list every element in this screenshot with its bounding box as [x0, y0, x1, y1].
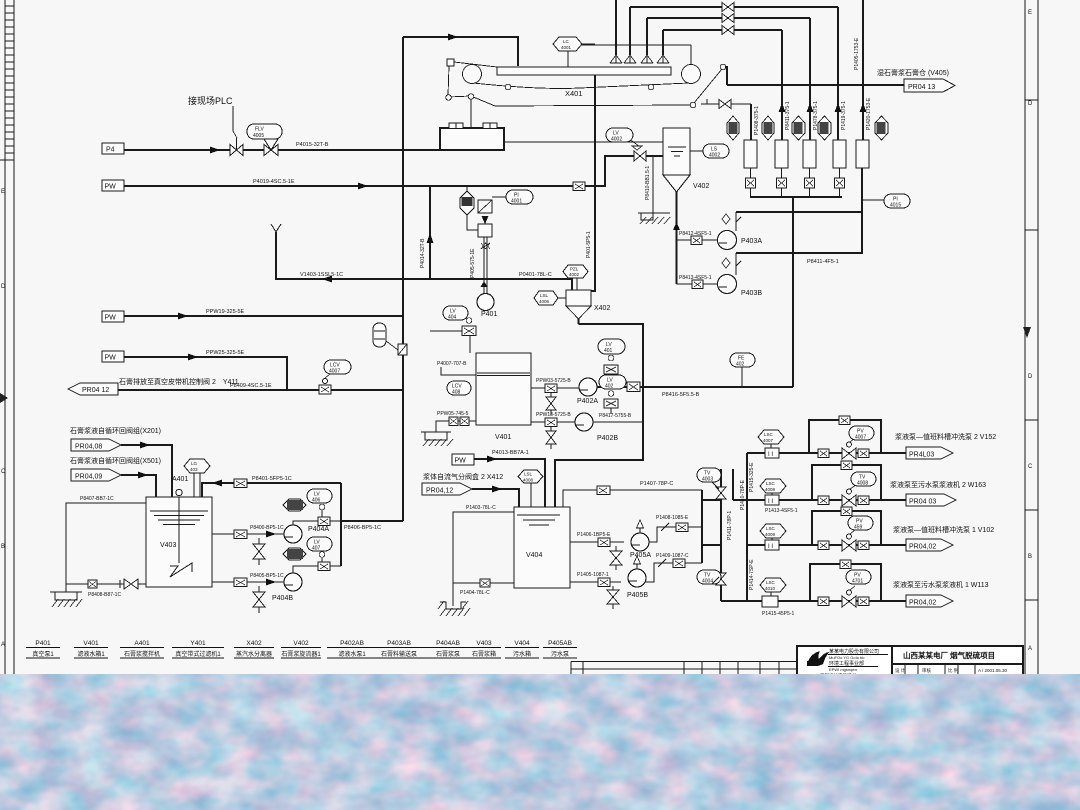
- svg-text:EPWI mgsnqerr: EPWI mgsnqerr: [829, 667, 858, 672]
- svg-text:P8417-5755-B: P8417-5755-B: [599, 413, 632, 419]
- svg-text:P402B: P402B: [597, 435, 618, 442]
- svg-text:PR04 13: PR04 13: [908, 84, 935, 91]
- svg-text:浆液泵至污水泵浆液机 1 W113: 浆液泵至污水泵浆液机 1 W113: [893, 580, 989, 589]
- svg-text:浆液泵—值班料槽冲洗泵 1 V102: 浆液泵—值班料槽冲洗泵 1 V102: [893, 525, 994, 534]
- svg-text:P401: P401: [35, 640, 51, 647]
- svg-text:PW: PW: [105, 315, 117, 322]
- svg-text:石膏浆旋流器1: 石膏浆旋流器1: [281, 650, 321, 658]
- svg-text:P1413-4SF5-1: P1413-4SF5-1: [765, 508, 798, 514]
- svg-text:LSC: LSC: [766, 580, 776, 585]
- svg-text:V403: V403: [476, 640, 492, 647]
- svg-text:山西某某电厂 烟气脱硫项目: 山西某某电厂 烟气脱硫项目: [903, 650, 995, 660]
- svg-text:4008: 4008: [523, 478, 534, 483]
- svg-text:环境工程事业部: 环境工程事业部: [829, 660, 864, 667]
- svg-text:设 计: 设 计: [895, 667, 906, 674]
- svg-text:P405A: P405A: [630, 552, 651, 559]
- svg-text:PR04 03: PR04 03: [909, 499, 936, 506]
- svg-text:P403AB: P403AB: [387, 640, 411, 647]
- svg-text:V403: V403: [160, 542, 176, 549]
- svg-text:P1415-45P5-1: P1415-45P5-1: [762, 611, 794, 617]
- svg-text:4001: 4001: [561, 45, 572, 50]
- svg-text:PPW19-325-5E: PPW19-325-5E: [206, 309, 245, 315]
- svg-text:V402: V402: [293, 640, 309, 647]
- svg-text:PR04,12: PR04,12: [426, 488, 453, 495]
- svg-text:4009: 4009: [765, 532, 776, 537]
- svg-text:407: 407: [312, 546, 321, 552]
- svg-text:A / 2001.05.30: A / 2001.05.30: [978, 668, 1008, 673]
- svg-text:P404B: P404B: [272, 595, 293, 602]
- svg-text:PR4L03: PR4L03: [909, 452, 934, 459]
- svg-text:I I: I I: [768, 544, 773, 550]
- svg-text:A401: A401: [172, 476, 188, 483]
- svg-text:湿石膏浆石膏仓 (V405): 湿石膏浆石膏仓 (V405): [877, 68, 949, 77]
- svg-text:P403B: P403B: [741, 290, 762, 297]
- svg-text:C: C: [1028, 464, 1033, 470]
- svg-text:4008: 4008: [857, 481, 868, 487]
- svg-text:PR04,09: PR04,09: [75, 474, 102, 481]
- svg-text:406: 406: [312, 498, 321, 504]
- svg-text:D: D: [1028, 101, 1033, 107]
- svg-text:P8409-4SC.5-1E: P8409-4SC.5-1E: [230, 383, 272, 389]
- svg-text:LSC: LSC: [766, 481, 776, 486]
- svg-text:PPW25-325-5E: PPW25-325-5E: [206, 350, 245, 356]
- svg-text:石膏浆箱: 石膏浆箱: [472, 650, 496, 658]
- svg-text:P8412-4SF5-1: P8412-4SF5-1: [679, 231, 712, 237]
- svg-text:PW: PW: [105, 355, 117, 362]
- svg-text:P8413-4SF5-1: P8413-4SF5-1: [679, 275, 712, 281]
- svg-text:4007: 4007: [763, 438, 774, 443]
- svg-text:石膏浆液自循环回阀组(X201): 石膏浆液自循环回阀组(X201): [70, 426, 161, 435]
- svg-text:P8405-BP5-1C: P8405-BP5-1C: [250, 573, 284, 579]
- svg-text:P403A: P403A: [741, 238, 762, 245]
- svg-text:PR04,02: PR04,02: [909, 600, 936, 607]
- svg-text:403: 403: [190, 467, 198, 472]
- svg-text:X402: X402: [246, 640, 262, 647]
- svg-text:P8416-5F5.5-B: P8416-5F5.5-B: [662, 392, 700, 398]
- svg-text:LG: LG: [191, 461, 198, 466]
- svg-text:PW: PW: [105, 184, 117, 191]
- svg-text:P401-5P5-1: P401-5P5-1: [586, 231, 592, 258]
- svg-text:402: 402: [736, 362, 745, 368]
- svg-text:某某电力股份有限公司: 某某电力股份有限公司: [829, 648, 879, 655]
- svg-text:4002: 4002: [709, 153, 720, 159]
- svg-text:P4015-32T-B: P4015-32T-B: [296, 142, 329, 148]
- svg-text:P4014-32T-B: P4014-32T-B: [420, 238, 426, 268]
- svg-text:4007: 4007: [855, 435, 866, 441]
- svg-text:4010: 4010: [765, 586, 776, 591]
- svg-text:P402AB: P402AB: [340, 640, 364, 647]
- svg-text:P1415-325-E: P1415-325-E: [749, 462, 755, 492]
- svg-text:P8406-BP5-1C: P8406-BP5-1C: [344, 525, 381, 531]
- svg-text:P404AB: P404AB: [436, 640, 460, 647]
- svg-text:408: 408: [452, 390, 461, 396]
- svg-text:P1408-1085-E: P1408-1085-E: [656, 515, 689, 521]
- svg-text:PR04 12: PR04 12: [82, 387, 109, 394]
- svg-text:PR04,02: PR04,02: [909, 544, 936, 551]
- svg-text:4006: 4006: [539, 299, 550, 304]
- svg-text:P8407-BB7-1C: P8407-BB7-1C: [80, 496, 114, 502]
- svg-text:P1420-1753-E: P1420-1753-E: [866, 97, 872, 130]
- svg-text:4007: 4007: [329, 369, 340, 375]
- svg-text:P8401-5FP5-1C: P8401-5FP5-1C: [252, 476, 292, 482]
- svg-text:滤液水泵1: 滤液水泵1: [338, 650, 366, 658]
- svg-text:PW: PW: [455, 458, 467, 465]
- svg-text:402: 402: [605, 384, 614, 390]
- svg-text:V402: V402: [693, 183, 709, 190]
- svg-text:LSC: LSC: [766, 526, 776, 531]
- svg-text:C: C: [1, 469, 6, 475]
- svg-text:P1407-78P-C: P1407-78P-C: [640, 481, 673, 487]
- svg-text:石膏浆搅拌机: 石膏浆搅拌机: [124, 650, 160, 658]
- svg-text:V404: V404: [526, 552, 542, 559]
- svg-text:P4019-4SC.5-1E: P4019-4SC.5-1E: [253, 179, 295, 185]
- svg-text:P8408-B87-1C: P8408-B87-1C: [88, 592, 121, 598]
- svg-text:P405-575-1E: P405-575-1E: [470, 248, 476, 278]
- svg-text:401: 401: [604, 348, 613, 354]
- svg-text:P1403-78L-C: P1403-78L-C: [466, 505, 496, 511]
- svg-text:V401: V401: [495, 434, 511, 441]
- svg-text:D: D: [1, 284, 6, 290]
- svg-text:污水泵: 污水泵: [551, 650, 569, 658]
- svg-text:FLV: FLV: [255, 127, 264, 133]
- svg-text:污水箱: 污水箱: [513, 650, 531, 658]
- svg-text:P1405-1753-E: P1405-1753-E: [854, 37, 860, 70]
- svg-text:4015: 4015: [890, 203, 901, 209]
- svg-text:D: D: [1028, 374, 1033, 380]
- svg-text:404: 404: [448, 315, 457, 321]
- svg-text:P1409-1087-C: P1409-1087-C: [656, 553, 689, 559]
- svg-text:V1403-1SSL5-1C: V1403-1SSL5-1C: [300, 272, 343, 278]
- svg-text:滤液水箱1: 滤液水箱1: [77, 650, 105, 658]
- svg-text:真空带式过滤机1: 真空带式过滤机1: [175, 650, 221, 658]
- svg-text:P4013-BB7A-1: P4013-BB7A-1: [492, 450, 529, 456]
- svg-text:P402A: P402A: [577, 398, 598, 405]
- svg-text:4008: 4008: [765, 487, 776, 492]
- svg-text:浆液泵—值班料槽冲洗泵 2 V152: 浆液泵—值班料槽冲洗泵 2 V152: [895, 432, 996, 441]
- svg-text:A401: A401: [134, 640, 150, 647]
- svg-text:4001: 4001: [511, 199, 522, 205]
- svg-text:石膏浆液自循环回阀组(X501): 石膏浆液自循环回阀组(X501): [70, 456, 161, 465]
- svg-text:PPW05-745-5: PPW05-745-5: [437, 411, 469, 417]
- svg-text:审核: 审核: [922, 667, 931, 674]
- svg-text:浆体自流气分阀盒 2 X412: 浆体自流气分阀盒 2 X412: [423, 472, 503, 481]
- svg-text:P8400-BP5-1C: P8400-BP5-1C: [250, 525, 284, 531]
- svg-text:B: B: [1, 544, 5, 550]
- svg-text:P4: P4: [106, 147, 115, 154]
- svg-text:P1406-1BP5-E: P1406-1BP5-E: [577, 532, 611, 538]
- svg-text:I I: I I: [768, 452, 773, 458]
- svg-text:LC: LC: [563, 39, 570, 44]
- svg-text:E: E: [1, 189, 5, 195]
- svg-text:真空泵1: 真空泵1: [32, 650, 54, 658]
- svg-text:蒸汽水分离器: 蒸汽水分离器: [236, 650, 272, 658]
- svg-text:P405B: P405B: [627, 592, 648, 599]
- svg-text:4002: 4002: [611, 137, 622, 143]
- svg-text:P0401-78L-C: P0401-78L-C: [519, 272, 552, 278]
- svg-text:P8411-4F5-1: P8411-4F5-1: [807, 259, 839, 265]
- svg-text:P4007-707-B: P4007-707-B: [437, 361, 467, 367]
- svg-text:P1405-1087-1: P1405-1087-1: [577, 572, 609, 578]
- svg-text:P8411-375-1: P8411-375-1: [785, 101, 791, 130]
- svg-text:P1410-78P-E: P1410-78P-E: [740, 479, 746, 510]
- svg-text:LSC: LSC: [764, 432, 774, 437]
- svg-text:X401: X401: [565, 89, 583, 98]
- svg-text:4004: 4004: [702, 579, 713, 585]
- svg-text:石膏浆泵: 石膏浆泵: [436, 650, 460, 658]
- svg-text:比 例: 比 例: [948, 667, 959, 674]
- svg-text:石膏料输送泵: 石膏料输送泵: [381, 650, 417, 658]
- svg-text:P1411-78P-1: P1411-78P-1: [727, 511, 733, 540]
- svg-text:LSL: LSL: [540, 293, 549, 298]
- svg-text:LSL: LSL: [524, 472, 533, 477]
- svg-text:PR04,08: PR04,08: [75, 444, 102, 451]
- svg-text:4701: 4701: [852, 579, 863, 585]
- svg-text:P401: P401: [481, 311, 497, 318]
- svg-text:B: B: [1028, 554, 1032, 560]
- svg-text:P1419-375-1: P1419-375-1: [841, 101, 847, 130]
- svg-text:4005: 4005: [253, 133, 264, 139]
- svg-text:浆液泵至污水泵浆液机 2 W163: 浆液泵至污水泵浆液机 2 W163: [890, 480, 986, 489]
- svg-text:A: A: [1, 642, 5, 648]
- svg-text:V401: V401: [83, 640, 99, 647]
- svg-text:石膏排放至真空皮带机控制阀 2 Y411: 石膏排放至真空皮带机控制阀 2 Y411: [119, 377, 239, 386]
- svg-text:E: E: [1028, 10, 1032, 16]
- svg-text:459: 459: [854, 525, 863, 531]
- svg-text:4003: 4003: [702, 477, 713, 483]
- svg-text:X402: X402: [594, 305, 610, 312]
- svg-text:接现场PLC: 接现场PLC: [188, 95, 233, 106]
- svg-text:P1404-78L-C: P1404-78L-C: [460, 590, 490, 596]
- svg-text:PPW13-5725-B: PPW13-5725-B: [536, 412, 571, 418]
- svg-text:MuFOu YG GoIo bb: MuFOu YG GoIo bb: [829, 655, 865, 660]
- svg-text:A: A: [1028, 646, 1032, 652]
- svg-text:PZL: PZL: [570, 267, 579, 272]
- svg-text:P404A: P404A: [308, 526, 329, 533]
- svg-text:P1414-7SP-E: P1414-7SP-E: [749, 559, 755, 590]
- svg-text:Y401: Y401: [190, 640, 206, 647]
- svg-text:P1408-375-1: P1408-375-1: [754, 106, 760, 135]
- svg-text:V404: V404: [514, 640, 530, 647]
- svg-text:4002: 4002: [569, 272, 580, 277]
- svg-text:PPW03-5725-B: PPW03-5725-B: [536, 378, 571, 384]
- svg-text:P8410-BB1.5-1: P8410-BB1.5-1: [645, 166, 651, 200]
- svg-text:P405AB: P405AB: [548, 640, 572, 647]
- svg-text:I I: I I: [768, 499, 773, 505]
